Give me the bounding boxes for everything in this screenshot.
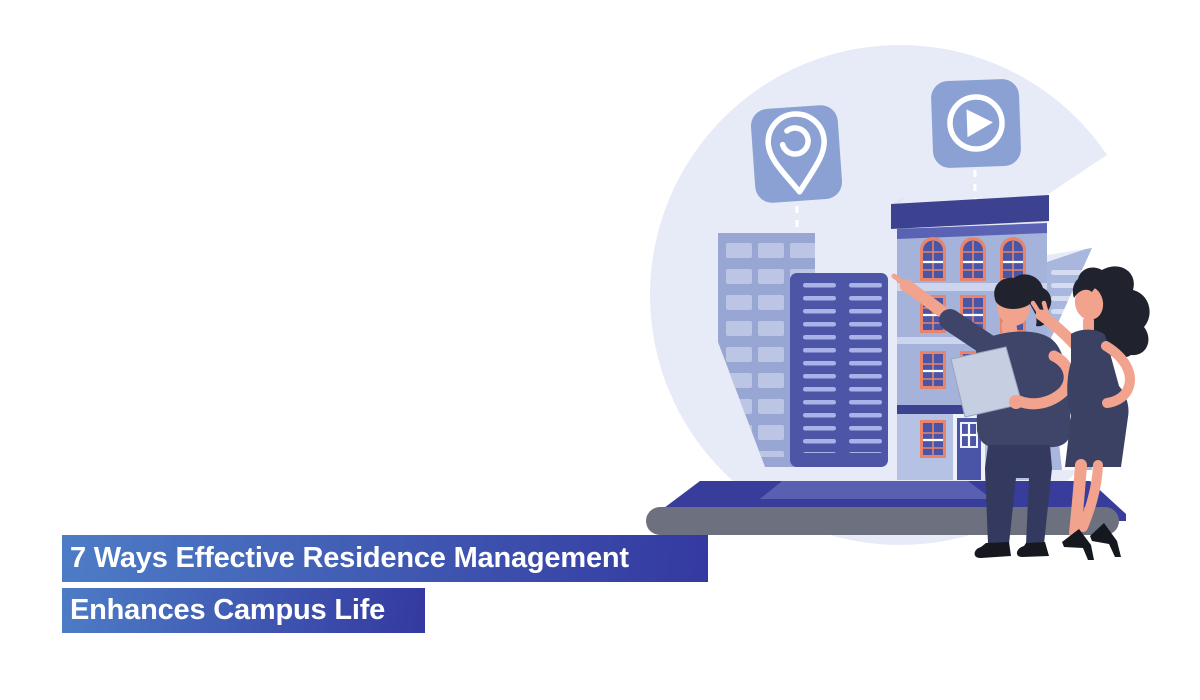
location-pin-badge [750,104,843,204]
laptop-base [646,507,1119,535]
title-line1: 7 Ways Effective Residence Management [70,542,629,575]
play-badge [931,78,1022,168]
building-left-front [790,273,888,467]
laptop [646,481,1126,535]
title-line2: Enhances Campus Life [70,594,385,627]
title-banner-line1: 7 Ways Effective Residence Management [62,535,708,582]
blog-banner: 7 Ways Effective Residence Management En… [0,0,1200,700]
title-banner-line2: Enhances Campus Life [62,588,425,633]
